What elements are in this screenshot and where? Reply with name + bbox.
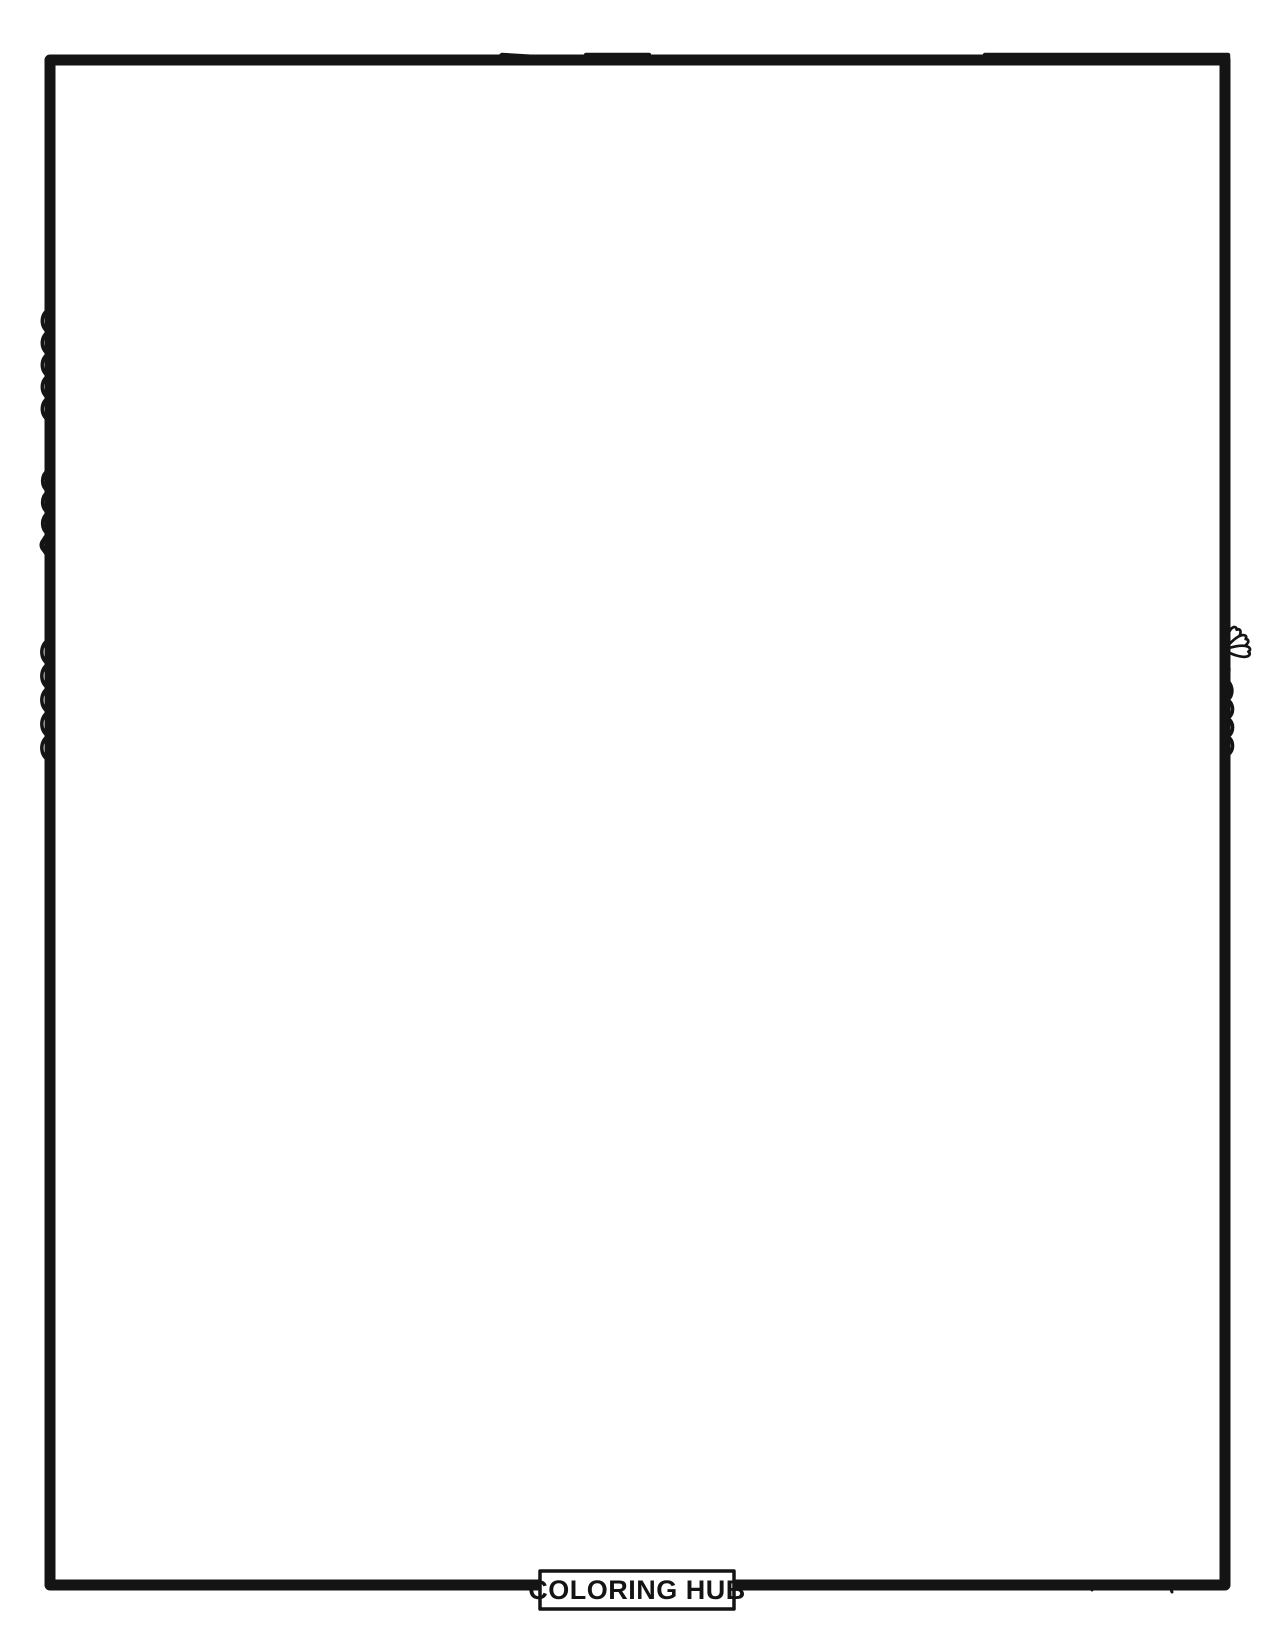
page-frame	[50, 60, 1225, 1585]
coloring-page-artwork: WELCOME	[0, 0, 1275, 1650]
coloring-page: WELCOME	[0, 0, 1275, 1650]
brand-badge-text: COLORING HUB	[528, 1575, 746, 1605]
brand-badge: COLORING HUB	[528, 1571, 746, 1609]
